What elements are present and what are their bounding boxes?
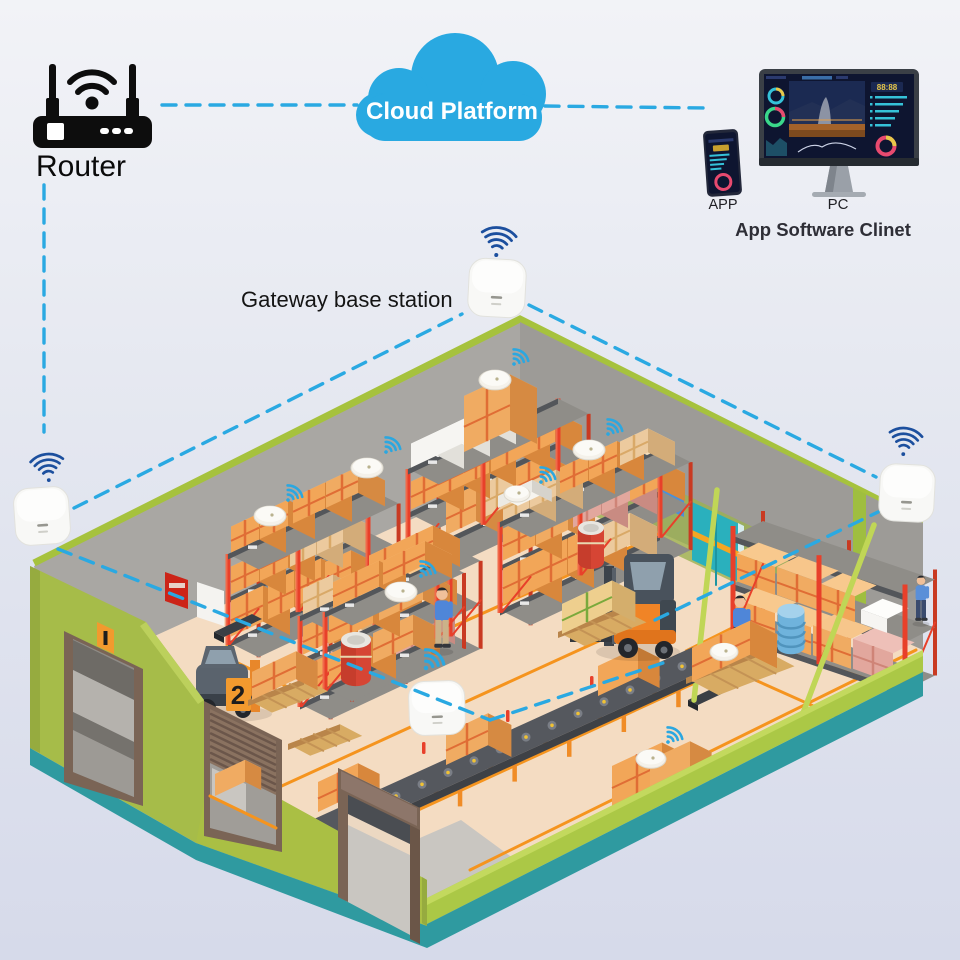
- svg-text:Gateway base station: Gateway base station: [241, 287, 453, 312]
- svg-text:Router: Router: [36, 150, 126, 183]
- svg-text:Cloud Platform: Cloud Platform: [366, 98, 538, 125]
- svg-text:App Software Clinet: App Software Clinet: [735, 219, 911, 240]
- svg-text:PC: PC: [828, 196, 849, 213]
- svg-text:2: 2: [231, 680, 245, 710]
- svg-text:88:88: 88:88: [877, 83, 898, 92]
- svg-text:APP: APP: [708, 197, 737, 213]
